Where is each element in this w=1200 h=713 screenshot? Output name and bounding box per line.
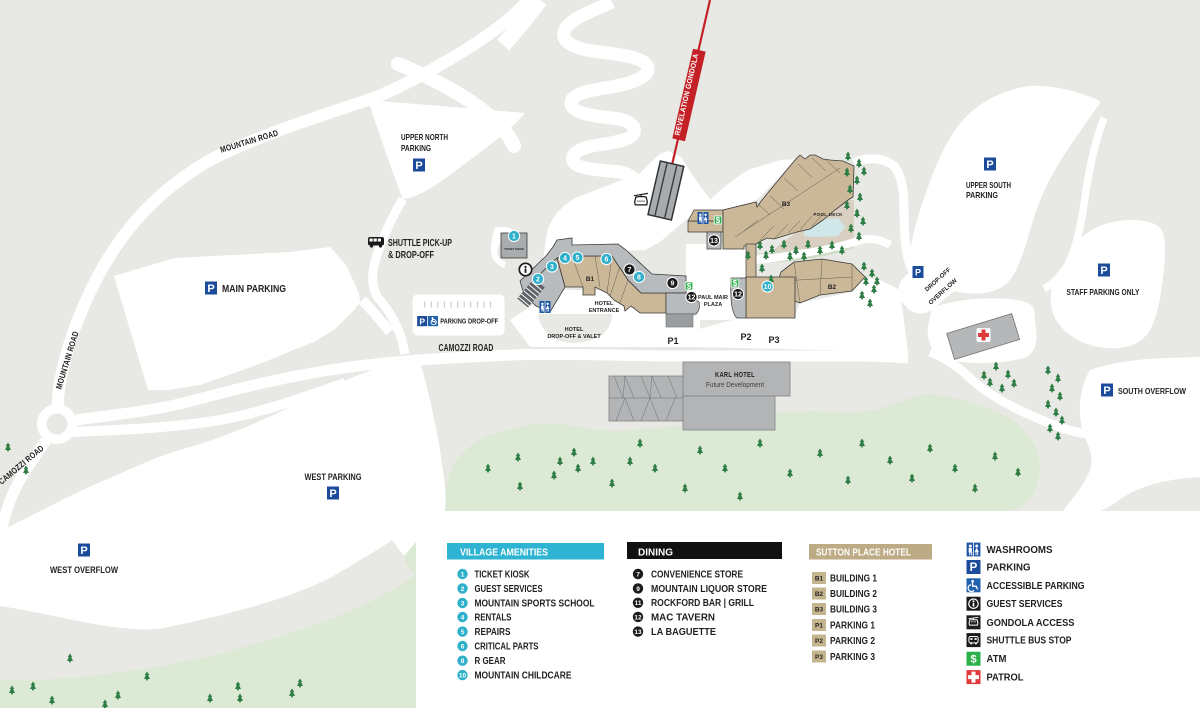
svg-text:12: 12 — [688, 295, 696, 302]
svg-text:P1: P1 — [667, 336, 678, 346]
svg-text:B2: B2 — [828, 284, 837, 291]
svg-text:7: 7 — [636, 571, 640, 578]
svg-text:3: 3 — [461, 600, 465, 607]
svg-text:PARKING 3: PARKING 3 — [830, 652, 875, 663]
svg-text:& DROP-OFF: & DROP-OFF — [388, 249, 434, 261]
svg-text:SOUTH OVERFLOW: SOUTH OVERFLOW — [1118, 387, 1186, 396]
svg-text:BUILDING 3: BUILDING 3 — [830, 605, 877, 616]
svg-text:BUILDING 2: BUILDING 2 — [830, 589, 877, 600]
svg-text:4: 4 — [461, 614, 465, 621]
svg-text:ACCESSIBLE PARKING: ACCESSIBLE PARKING — [987, 580, 1085, 592]
svg-text:8: 8 — [637, 275, 641, 282]
svg-text:GUEST SERVICES: GUEST SERVICES — [987, 598, 1063, 610]
svg-text:TICKET KIOSK: TICKET KIOSK — [475, 569, 531, 580]
svg-text:P2: P2 — [740, 332, 751, 342]
svg-text:12: 12 — [634, 614, 642, 621]
svg-text:P: P — [915, 267, 921, 277]
svg-text:PARKING: PARKING — [401, 143, 431, 153]
svg-text:TICKET KIOSK: TICKET KIOSK — [504, 247, 524, 251]
svg-text:SHUTTLE BUS STOP: SHUTTLE BUS STOP — [987, 635, 1072, 647]
svg-text:KARL HOTEL: KARL HOTEL — [715, 370, 755, 379]
svg-text:5: 5 — [576, 255, 580, 262]
svg-text:P3: P3 — [768, 335, 779, 345]
svg-text:2: 2 — [461, 586, 465, 593]
svg-text:SHUTTLE PICK-UP: SHUTTLE PICK-UP — [388, 237, 452, 249]
svg-text:9: 9 — [671, 281, 675, 288]
svg-text:PARKING 1: PARKING 1 — [830, 621, 875, 632]
svg-text:WASHROOMS: WASHROOMS — [987, 544, 1053, 556]
svg-text:4: 4 — [563, 256, 567, 263]
svg-text:P: P — [970, 562, 978, 574]
svg-text:10: 10 — [459, 673, 467, 680]
svg-text:MOUNTAIN SPORTS SCHOOL: MOUNTAIN SPORTS SCHOOL — [475, 598, 595, 609]
svg-text:PAUL MAIR: PAUL MAIR — [698, 295, 728, 301]
svg-text:MAIN PARKING: MAIN PARKING — [222, 283, 286, 295]
svg-text:B1: B1 — [815, 575, 824, 582]
svg-text:P: P — [419, 316, 425, 326]
svg-text:ATM: ATM — [987, 653, 1007, 665]
svg-text:MOUNTAIN CHILDCARE: MOUNTAIN CHILDCARE — [475, 671, 572, 682]
svg-text:DINING: DINING — [638, 547, 673, 559]
svg-text:BUILDING 1: BUILDING 1 — [830, 574, 877, 585]
svg-text:CONVENIENCE STORE: CONVENIENCE STORE — [651, 569, 743, 580]
svg-text:UPPER SOUTH: UPPER SOUTH — [966, 180, 1011, 190]
svg-text:B3: B3 — [815, 606, 824, 613]
svg-text:PARKING: PARKING — [966, 190, 998, 200]
svg-text:STAFF PARKING ONLY: STAFF PARKING ONLY — [1067, 287, 1140, 297]
svg-text:7: 7 — [628, 267, 632, 274]
svg-text:13: 13 — [710, 238, 718, 245]
svg-text:6: 6 — [461, 643, 465, 650]
svg-text:MAC TAVERN: MAC TAVERN — [651, 612, 715, 623]
svg-text:PARKING DROP-OFF: PARKING DROP-OFF — [440, 317, 498, 326]
svg-text:REPAIRS: REPAIRS — [475, 627, 511, 638]
svg-text:13: 13 — [634, 629, 642, 636]
svg-text:$: $ — [970, 654, 976, 666]
svg-text:1: 1 — [461, 571, 465, 578]
svg-text:RENTALS: RENTALS — [475, 612, 512, 623]
svg-text:DROP-OFF & VALET: DROP-OFF & VALET — [547, 334, 601, 340]
svg-text:10: 10 — [764, 284, 772, 291]
svg-text:B2: B2 — [815, 591, 824, 598]
svg-text:6: 6 — [605, 257, 609, 264]
svg-text:WEST PARKING: WEST PARKING — [305, 472, 362, 482]
svg-text:B3: B3 — [782, 201, 791, 208]
svg-text:CRITICAL PARTS: CRITICAL PARTS — [475, 641, 539, 652]
svg-text:PLAZA: PLAZA — [704, 302, 722, 308]
svg-text:CAMOZZI ROAD: CAMOZZI ROAD — [439, 343, 494, 354]
svg-text:HOTEL: HOTEL — [595, 301, 614, 307]
svg-text:ENTRANCE: ENTRANCE — [589, 308, 620, 314]
svg-text:2: 2 — [536, 277, 540, 284]
svg-text:MOUNTAIN LIQUOR STORE: MOUNTAIN LIQUOR STORE — [651, 584, 767, 595]
svg-text:R GEAR: R GEAR — [475, 656, 507, 667]
svg-text:PARKING: PARKING — [987, 562, 1031, 574]
svg-text:B1: B1 — [586, 276, 595, 283]
svg-text:9: 9 — [636, 586, 640, 593]
svg-text:POOL DECK: POOL DECK — [813, 212, 843, 217]
svg-text:11: 11 — [635, 600, 642, 607]
svg-text:PARKING 2: PARKING 2 — [830, 636, 875, 647]
svg-text:3: 3 — [550, 264, 554, 271]
svg-text:SUTTON PLACE HOTEL: SUTTON PLACE HOTEL — [816, 548, 911, 559]
svg-text:8: 8 — [461, 658, 465, 665]
svg-text:ROCKFORD BAR | GRILL: ROCKFORD BAR | GRILL — [651, 598, 754, 609]
svg-text:WEST OVERFLOW: WEST OVERFLOW — [50, 565, 118, 575]
svg-text:HOTEL: HOTEL — [565, 327, 584, 333]
svg-text:LA BAGUETTE: LA BAGUETTE — [651, 627, 716, 638]
svg-text:P1: P1 — [815, 622, 823, 629]
svg-text:1: 1 — [512, 234, 516, 241]
svg-text:GONDOLA ACCESS: GONDOLA ACCESS — [987, 617, 1075, 629]
svg-text:GUEST SERVICES: GUEST SERVICES — [475, 584, 543, 595]
svg-text:12: 12 — [734, 292, 742, 299]
svg-text:VILLAGE AMENITIES: VILLAGE AMENITIES — [460, 547, 548, 559]
svg-text:UPPER NORTH: UPPER NORTH — [401, 132, 448, 142]
svg-text:P3: P3 — [815, 654, 823, 661]
svg-text:PATROL: PATROL — [987, 672, 1025, 684]
svg-text:Future Development: Future Development — [706, 380, 765, 389]
svg-text:P2: P2 — [815, 638, 823, 645]
svg-text:5: 5 — [461, 629, 465, 636]
